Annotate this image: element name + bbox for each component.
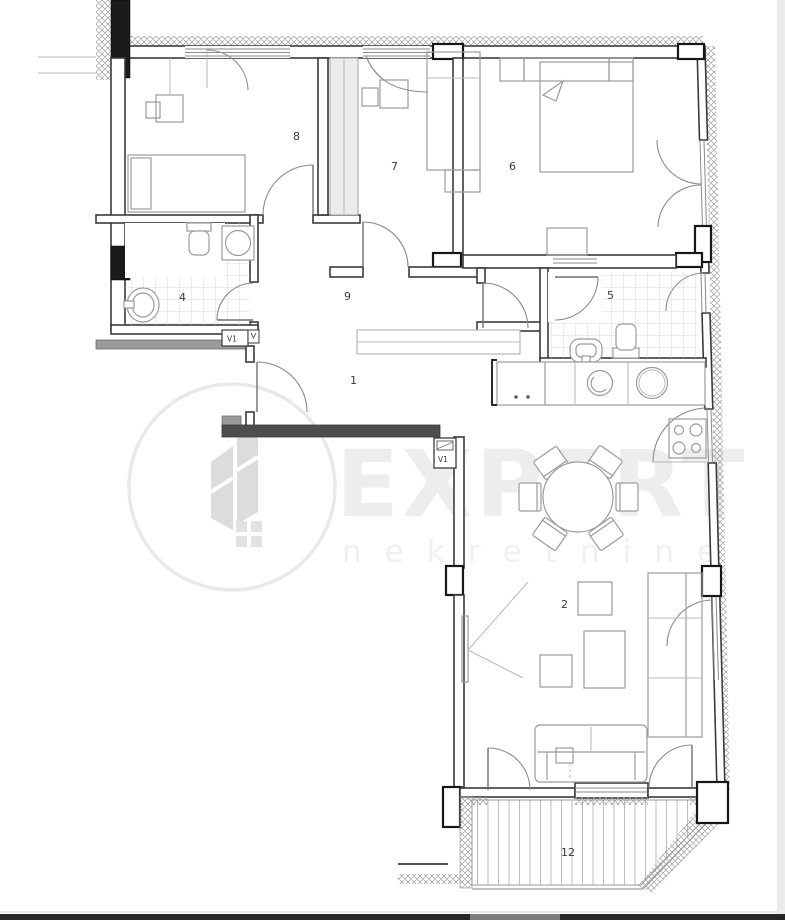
horizontal-scrollbar[interactable] (0, 914, 785, 920)
hall-wardrobe-icon (357, 330, 520, 354)
column-topright (678, 44, 704, 59)
column-balcony-left (443, 787, 460, 827)
column-balcony-right (697, 782, 728, 823)
window-top-room7 (363, 46, 430, 92)
dining-chair-icon (616, 483, 638, 511)
column-wall65 (676, 253, 702, 267)
room8-door (263, 165, 313, 215)
room-label-7: 7 (391, 160, 398, 173)
bedroom-right (500, 58, 633, 255)
bathroom-left (124, 223, 254, 325)
insulation-hatch-left (96, 0, 111, 80)
balcony-door-left (488, 748, 530, 790)
terrace-stub-hatch (398, 874, 460, 884)
room-label-12: 12 (561, 846, 575, 859)
page-right-margin (777, 0, 785, 920)
window-living-south (575, 783, 648, 798)
room-label-8: 8 (293, 130, 300, 143)
floor-plan-viewport: EXPERT nekretnine (0, 0, 785, 920)
vent-shaft-1-label: V1 (227, 335, 237, 344)
floor-plan-canvas: EXPERT nekretnine (0, 0, 785, 920)
room-label-6: 6 (509, 160, 516, 173)
balcony-door-room6 (657, 140, 707, 228)
scrollbar-thumb[interactable] (470, 914, 560, 920)
room-label-4: 4 (179, 291, 186, 304)
watermark: EXPERT nekretnine (129, 384, 748, 590)
hallway-south-wall (222, 425, 440, 437)
living-room (462, 573, 702, 790)
cabinet-handle (526, 395, 529, 398)
shelving-icon (648, 573, 702, 737)
scrollbar-track[interactable] (0, 914, 785, 920)
window-top-room8 (185, 46, 290, 90)
dining-chair-icon (519, 483, 541, 511)
toilet-icon (613, 324, 639, 358)
desk-icon (362, 80, 408, 108)
entrance-door (257, 362, 307, 412)
vent-shaft-2: V1 (434, 438, 456, 468)
desk-icon (146, 58, 183, 122)
dresser-icon (547, 228, 587, 255)
balcony-door-right (649, 745, 692, 788)
watermark-building-logo (211, 425, 262, 547)
room-label-9: 9 (344, 290, 351, 303)
coffee-table-icon (584, 631, 625, 688)
bath5-doorway (553, 257, 597, 267)
column-living-west (446, 566, 463, 595)
dining-table-icon (543, 462, 613, 532)
coffee-table-icon (540, 655, 572, 687)
vent-shaft-1: V1 (222, 330, 259, 346)
washing-machine-icon (222, 226, 254, 260)
sofa-icon (535, 725, 647, 782)
terrace-left-wall (460, 797, 472, 888)
bed-icon (128, 155, 245, 212)
wardrobe-icon (330, 58, 358, 215)
insulation-hatch-top (125, 36, 703, 46)
window-living-right (667, 596, 719, 680)
vent-shaft-2-label: V1 (438, 455, 448, 464)
toilet-icon (187, 223, 211, 255)
bathroom-right (548, 272, 698, 362)
cabinet-handle (514, 395, 517, 398)
room-label-2: 2 (561, 598, 568, 611)
side-table-icon (556, 748, 573, 763)
bedroom-left (128, 58, 313, 215)
column-right-living (702, 566, 721, 596)
column-room7-bottom (433, 253, 461, 267)
room-label-5: 5 (607, 289, 614, 302)
coffee-table-icon (578, 582, 612, 615)
room7-door (363, 222, 408, 267)
bed-icon (500, 58, 633, 172)
room-label-1: 1 (350, 374, 357, 387)
tv-icon (462, 582, 528, 682)
sink-icon (570, 339, 602, 362)
